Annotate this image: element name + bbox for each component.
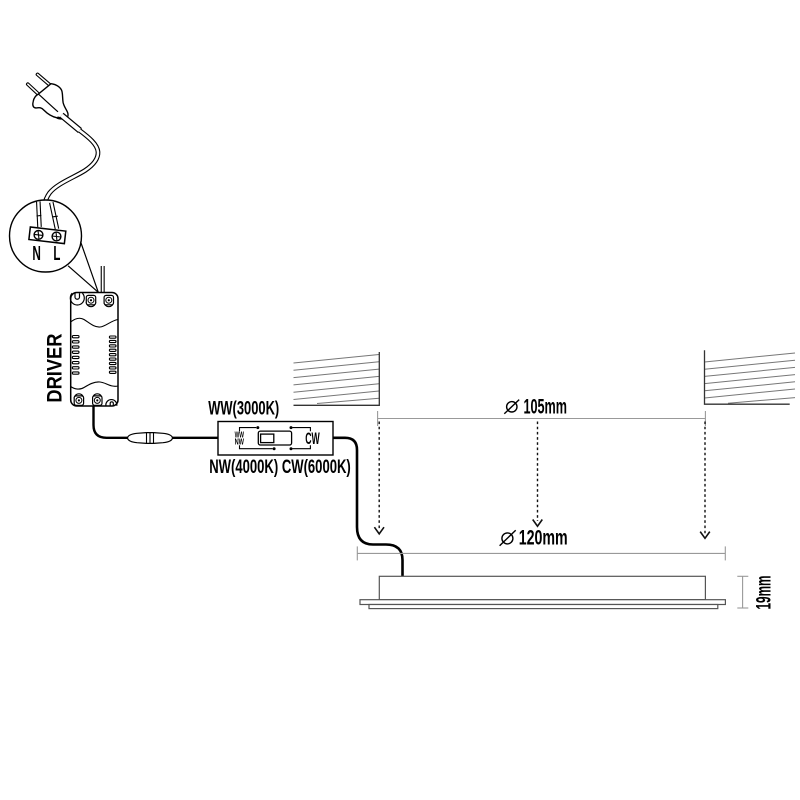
- svg-text:CW: CW: [305, 430, 320, 448]
- svg-text:DRIVER: DRIVER: [42, 333, 66, 402]
- svg-text:NW: NW: [235, 438, 245, 447]
- svg-text:105mm: 105mm: [524, 396, 568, 419]
- svg-text:19mm: 19mm: [753, 576, 776, 610]
- svg-text:N: N: [32, 242, 41, 265]
- svg-text:WW(3000K): WW(3000K): [208, 399, 279, 420]
- svg-text:120mm: 120mm: [519, 527, 568, 550]
- svg-text:L: L: [53, 242, 60, 265]
- svg-text:NW(4000K) CW(6000K): NW(4000K) CW(6000K): [209, 457, 351, 478]
